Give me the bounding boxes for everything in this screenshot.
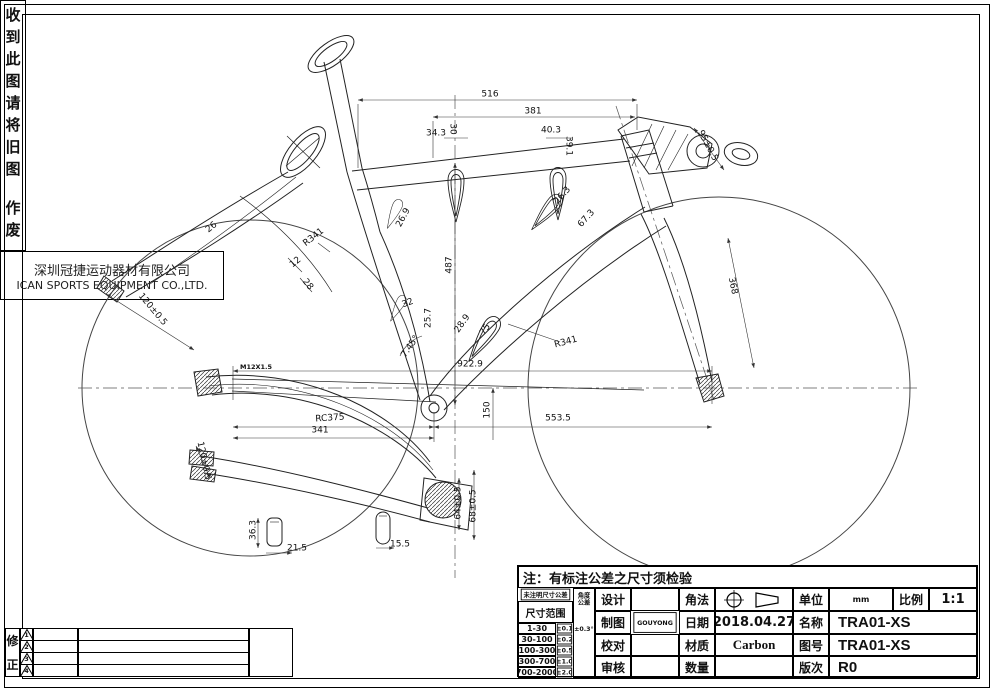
scale-label: 比例: [893, 588, 929, 611]
dimension-label: 95±0.5: [695, 129, 719, 163]
dimension-label: 34.3: [426, 130, 446, 139]
revision-label-column: 修 正: [5, 628, 20, 677]
dimension-label: 516: [481, 91, 498, 100]
date-label: 日期: [679, 611, 715, 634]
dimension-label: 67.3: [577, 209, 597, 230]
dimension-label: 341: [311, 427, 328, 436]
tolerance-range: 300-700: [518, 656, 556, 667]
dimension-label: RC375: [315, 413, 345, 424]
dimension-label: 40.3: [541, 127, 561, 136]
dimension-label: 120±0.5: [136, 292, 168, 328]
name-label: 名称: [793, 611, 829, 634]
tolerance-value: ±2.0: [557, 668, 572, 678]
draft-label: 制图: [595, 611, 631, 634]
unit-value: mm: [829, 588, 893, 611]
rev-value: R0: [829, 656, 977, 678]
title-block: 注：有标注公差之尺寸须检验 未注明尺寸公差 尺寸范围 1-30 ±0.1 30-…: [517, 565, 978, 677]
tolerance-value: ±1.0: [557, 657, 572, 667]
dimension-label: 922.9: [457, 361, 483, 370]
date-value: 2018.04.27: [715, 611, 793, 634]
drawing-no-value: TRA01-XS: [829, 634, 977, 656]
projection-label: 角法: [679, 588, 715, 611]
dimension-label: 32: [401, 298, 415, 310]
design-value: [631, 588, 679, 611]
dimension-label: 28.9: [454, 313, 473, 335]
revision-cell: [249, 628, 293, 677]
angle-tolerance-cell: 角度公差 ±0.3°: [573, 588, 595, 678]
material-label: 材质: [679, 634, 715, 656]
audit-value: [631, 656, 679, 678]
audit-label: 审核: [595, 656, 631, 678]
dimension-label: 368: [726, 277, 738, 296]
dimension-label: 28: [300, 278, 314, 293]
dimension-label: 68±0.5: [470, 489, 479, 522]
dimension-label: 64±0.5: [455, 486, 464, 519]
angle-tolerance-header: 角度公差: [575, 593, 593, 607]
name-value: TRA01-XS: [829, 611, 977, 634]
tolerance-value: ±0.1: [557, 624, 572, 634]
tolerance-range: 100-300: [518, 645, 556, 656]
dimension-label: 75: [479, 323, 493, 338]
unit-label: 单位: [793, 588, 829, 611]
dimension-label: 487: [446, 256, 455, 273]
tolerance-value: ±0.2: [557, 635, 572, 645]
tolerance-subheader: 尺寸范围: [518, 601, 573, 623]
dimension-label: R341: [302, 227, 326, 249]
revision-triangle-icon: 1: [20, 629, 34, 641]
check-value: [631, 634, 679, 656]
dimension-label: 30: [448, 123, 457, 134]
tolerance-range: 1-30: [518, 623, 556, 634]
tolerance-header: 未注明尺寸公差: [521, 589, 571, 601]
revision-triangle-icon: 3: [20, 653, 34, 665]
draft-value: GOUYONG: [633, 612, 676, 633]
dimension-label: 25.7: [425, 308, 434, 328]
revision-triangle-icon: 4: [20, 665, 34, 677]
revision-marker-column: 1 2 3 4: [20, 628, 33, 677]
dimension-label: 36.3: [250, 520, 259, 540]
tolerance-value: ±0.5: [557, 646, 572, 656]
projection-symbol-cell: [715, 588, 793, 611]
revision-triangle-icon: 2: [20, 641, 34, 653]
rev-label: 版次: [793, 656, 829, 678]
material-value: Carbon: [715, 634, 793, 656]
check-label: 校对: [595, 634, 631, 656]
dimension-label: 150: [484, 401, 493, 418]
dimension-label: 15.5: [390, 541, 410, 550]
inspection-note: 注：有标注公差之尺寸须检验: [518, 566, 977, 588]
dimension-label: R341: [554, 336, 579, 351]
dimension-label: 120±0.5: [195, 441, 212, 481]
dimension-label: 26: [205, 221, 220, 235]
scale-value: 1:1: [929, 588, 977, 611]
dimension-label: 12: [289, 256, 304, 270]
dimension-label: 39.1: [564, 136, 573, 156]
dimension-label: 7.45°: [400, 334, 421, 359]
dimension-label: 26.3: [553, 186, 573, 207]
tolerance-range: 700-2000: [518, 667, 556, 678]
drawing-no-label: 图号: [793, 634, 829, 656]
dimension-label: 21.5: [287, 545, 307, 554]
dimension-label: 26.9: [395, 207, 412, 229]
tolerance-range: 30-100: [518, 634, 556, 645]
design-label: 设计: [595, 588, 631, 611]
qty-label: 数量: [679, 656, 715, 678]
dimension-label: 381: [524, 108, 541, 117]
dimension-label: 553.5: [545, 415, 571, 424]
angle-tolerance-value: ±0.3°: [574, 626, 594, 633]
dimension-label: M12X1.5: [240, 364, 272, 371]
qty-value: [715, 656, 793, 678]
projection-symbol-icon: [722, 590, 786, 610]
drawing-sheet: 51638134.33040.339.195±0.526.926.367.348…: [0, 0, 994, 691]
